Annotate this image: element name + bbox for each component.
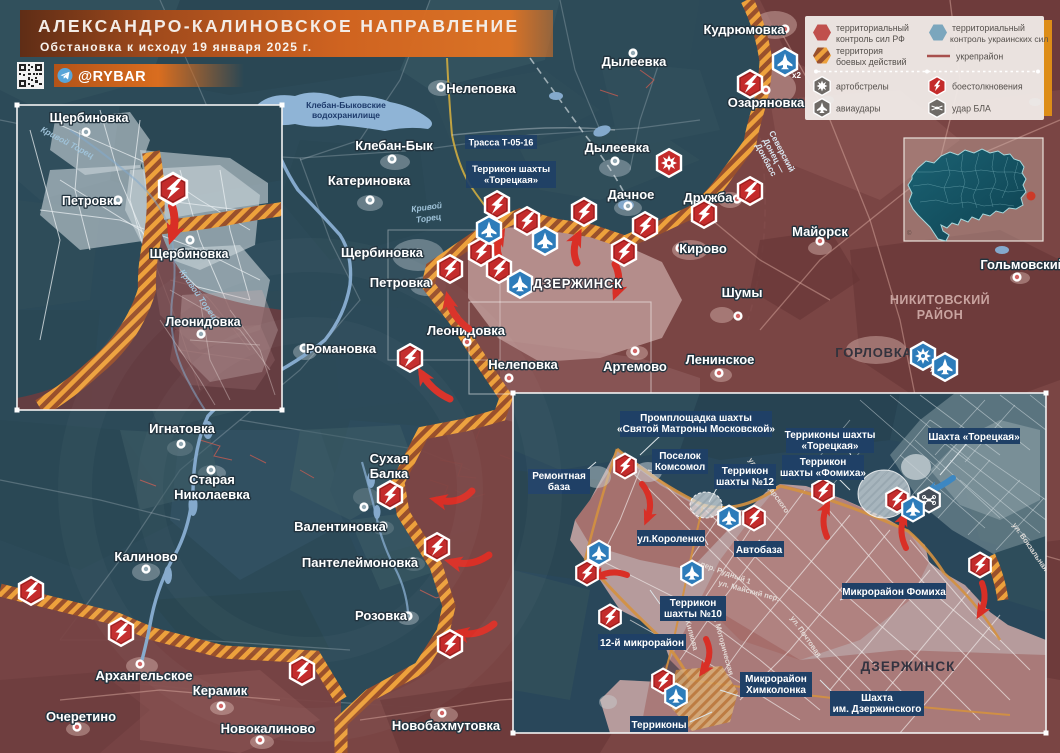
svg-text:Дылеевка: Дылеевка xyxy=(602,54,667,69)
svg-text:им. Дзержинского: им. Дзержинского xyxy=(833,704,922,715)
svg-text:контроль сил РФ: контроль сил РФ xyxy=(836,34,905,44)
svg-text:Комсомол: Комсомол xyxy=(655,462,705,473)
svg-text:ДЗЕРЖИНСК: ДЗЕРЖИНСК xyxy=(533,276,623,291)
svg-text:авиаудары: авиаудары xyxy=(836,104,881,114)
svg-text:Обстановка к исходу 19 января: Обстановка к исходу 19 января 2025 г. xyxy=(40,40,312,54)
svg-text:Клебан-Бык: Клебан-Бык xyxy=(355,138,433,153)
svg-text:x2: x2 xyxy=(792,71,801,80)
svg-text:«Торецкая»: «Торецкая» xyxy=(484,175,538,186)
svg-text:Озаряновка: Озаряновка xyxy=(728,95,805,110)
svg-text:©: © xyxy=(907,230,912,237)
svg-text:Кирово: Кирово xyxy=(679,241,727,256)
svg-text:Нелеповка: Нелеповка xyxy=(446,81,516,96)
svg-text:боевых действий: боевых действий xyxy=(836,57,907,67)
svg-text:«Святой Матроны Московской»: «Святой Матроны Московской» xyxy=(617,424,775,435)
svg-text:ул.Короленко: ул.Короленко xyxy=(637,534,705,545)
svg-text:Терриконы шахты: Терриконы шахты xyxy=(785,430,876,441)
svg-text:Террикон: Террикон xyxy=(670,598,717,609)
svg-text:@RYBAR: @RYBAR xyxy=(78,69,146,85)
svg-text:Кудрюмовка: Кудрюмовка xyxy=(703,22,785,37)
svg-text:Микрорайон Фомиха: Микрорайон Фомиха xyxy=(842,587,946,598)
svg-text:Промплощадка шахты: Промплощадка шахты xyxy=(640,413,752,424)
svg-text:Ленинское: Ленинское xyxy=(686,352,755,367)
svg-text:Николаевка: Николаевка xyxy=(174,487,251,502)
svg-text:Химколонка: Химколонка xyxy=(746,685,806,696)
svg-text:Террикон шахты: Террикон шахты xyxy=(472,164,550,175)
svg-text:Дылеевка: Дылеевка xyxy=(585,140,650,155)
svg-text:Шахта: Шахта xyxy=(861,693,893,704)
svg-text:территориальный: территориальный xyxy=(952,23,1025,33)
svg-text:боестолкновения: боестолкновения xyxy=(952,82,1023,92)
svg-text:Очеретино: Очеретино xyxy=(46,709,116,724)
svg-text:удар БЛА: удар БЛА xyxy=(952,104,991,114)
svg-text:территория: территория xyxy=(836,46,883,56)
svg-text:АЛЕКСАНДРО-КАЛИНОВСКОЕ НАПРАВЛ: АЛЕКСАНДРО-КАЛИНОВСКОЕ НАПРАВЛЕНИЕ xyxy=(38,16,520,36)
svg-text:Шахта «Торецкая»: Шахта «Торецкая» xyxy=(928,432,1020,443)
svg-text:Поселок: Поселок xyxy=(659,451,702,462)
svg-text:«Торецкая»: «Торецкая» xyxy=(802,441,859,452)
svg-text:Петровка: Петровка xyxy=(62,194,121,208)
svg-text:Микрорайон: Микрорайон xyxy=(745,674,807,685)
svg-text:Автобаза: Автобаза xyxy=(736,544,783,556)
svg-text:Сухая: Сухая xyxy=(370,451,409,466)
svg-text:Катериновка: Катериновка xyxy=(328,173,411,188)
svg-text:шахты №12: шахты №12 xyxy=(716,477,774,488)
svg-text:водохранилище: водохранилище xyxy=(312,110,380,120)
svg-text:РАЙОН: РАЙОН xyxy=(917,307,964,322)
svg-text:НИКИТОВСКИЙ: НИКИТОВСКИЙ xyxy=(890,292,990,307)
svg-text:Балка: Балка xyxy=(370,466,409,481)
svg-text:Трасса Т-05-16: Трасса Т-05-16 xyxy=(469,138,534,148)
svg-text:артобстрелы: артобстрелы xyxy=(836,82,889,92)
svg-text:Гольмовский: Гольмовский xyxy=(980,257,1060,272)
svg-text:ГОРЛОВКА: ГОРЛОВКА xyxy=(835,345,913,360)
svg-text:укрепрайон: укрепрайон xyxy=(956,52,1003,62)
svg-text:территориальный: территориальный xyxy=(836,23,909,33)
svg-text:Дачное: Дачное xyxy=(608,187,655,202)
svg-text:Террикон: Террикон xyxy=(722,466,769,477)
svg-text:Клебан-Быковские: Клебан-Быковские xyxy=(306,100,386,110)
svg-text:12-й микрорайон: 12-й микрорайон xyxy=(600,638,684,649)
svg-text:Пантелеймоновка: Пантелеймоновка xyxy=(302,555,419,570)
svg-text:Майорск: Майорск xyxy=(792,224,848,239)
svg-text:Артемово: Артемово xyxy=(603,359,667,374)
svg-text:Терриконы: Терриконы xyxy=(631,720,686,731)
svg-text:Террикон: Террикон xyxy=(800,457,847,468)
svg-text:шахты «Фомиха»: шахты «Фомиха» xyxy=(780,468,866,479)
svg-text:контроль украинских сил: контроль украинских сил xyxy=(950,34,1048,44)
svg-text:Щербиновка: Щербиновка xyxy=(50,111,130,125)
svg-text:Валентиновка: Валентиновка xyxy=(294,519,386,534)
svg-text:Старая: Старая xyxy=(189,472,235,487)
svg-text:Шумы: Шумы xyxy=(722,285,763,300)
svg-text:ДЗЕРЖИНСК: ДЗЕРЖИНСК xyxy=(861,659,956,674)
svg-text:шахты №10: шахты №10 xyxy=(664,609,722,620)
